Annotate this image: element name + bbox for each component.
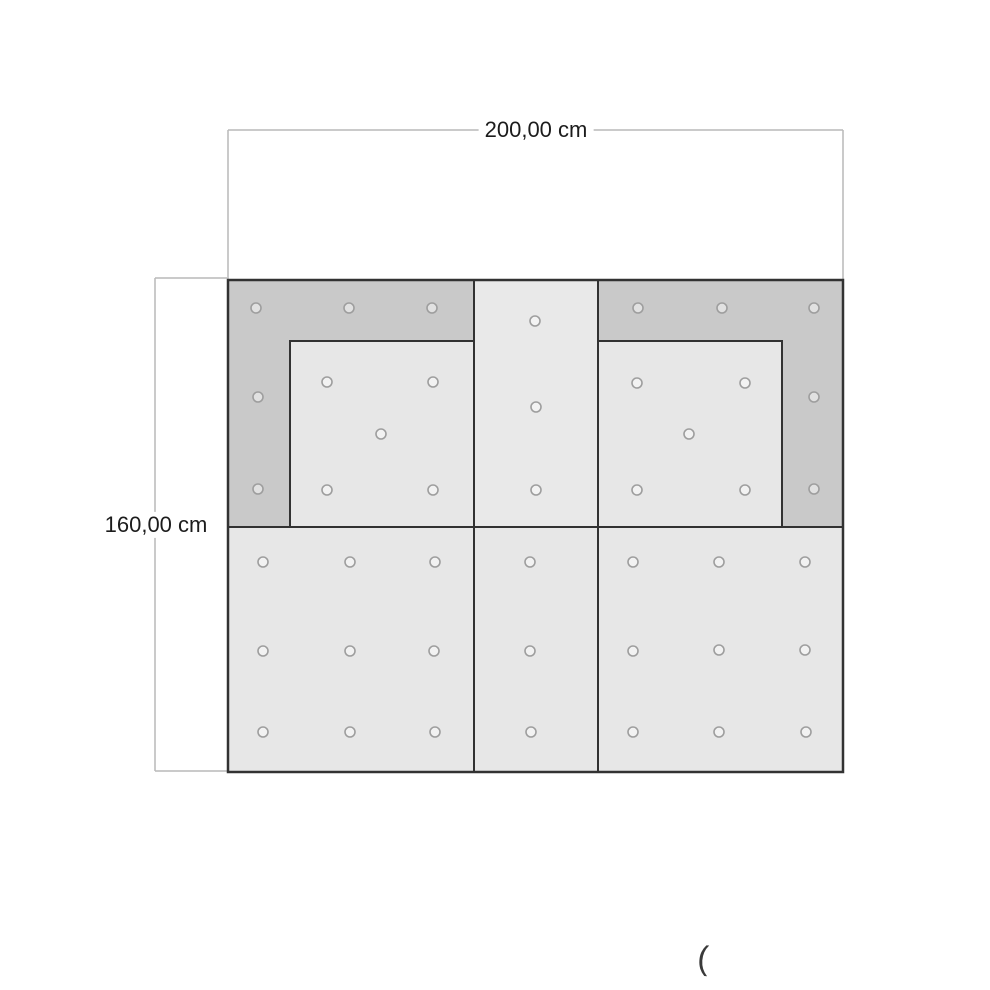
hole-marker [530,316,540,326]
hole-marker [628,727,638,737]
hole-marker [740,378,750,388]
hole-marker [628,646,638,656]
hole-marker [800,557,810,567]
hole-marker [800,645,810,655]
hole-marker [428,377,438,387]
hole-marker [258,727,268,737]
diagram-svg [0,0,990,990]
hole-marker [430,557,440,567]
hole-marker [345,646,355,656]
hole-marker [714,727,724,737]
hole-marker [809,392,819,402]
hole-marker [251,303,261,313]
hole-marker [427,303,437,313]
hole-marker [345,727,355,737]
hole-marker [376,429,386,439]
hole-marker [717,303,727,313]
hole-marker [525,557,535,567]
hole-marker [632,378,642,388]
hole-marker [428,485,438,495]
hole-marker [429,646,439,656]
hole-marker [714,557,724,567]
panel-lower-center-panel [474,527,598,772]
hole-marker [801,727,811,737]
hole-marker [809,303,819,313]
height-dimension-label: 160,00 cm [99,512,214,538]
hole-marker [531,402,541,412]
hole-marker [809,484,819,494]
hole-marker [531,485,541,495]
hole-marker [525,646,535,656]
hole-marker [322,377,332,387]
hole-marker [322,485,332,495]
hole-marker [526,727,536,737]
hole-marker [344,303,354,313]
hole-marker [628,557,638,567]
width-dimension-label: 200,00 cm [479,117,594,143]
hole-marker [430,727,440,737]
hole-marker [684,429,694,439]
drawing-canvas: 200,00 cm 160,00 cm ( [0,0,990,990]
hole-marker [258,646,268,656]
hole-marker [740,485,750,495]
hole-marker [632,485,642,495]
hole-marker [258,557,268,567]
hole-marker [633,303,643,313]
hole-marker [253,484,263,494]
hole-marker [253,392,263,402]
hole-marker [345,557,355,567]
hole-marker [714,645,724,655]
